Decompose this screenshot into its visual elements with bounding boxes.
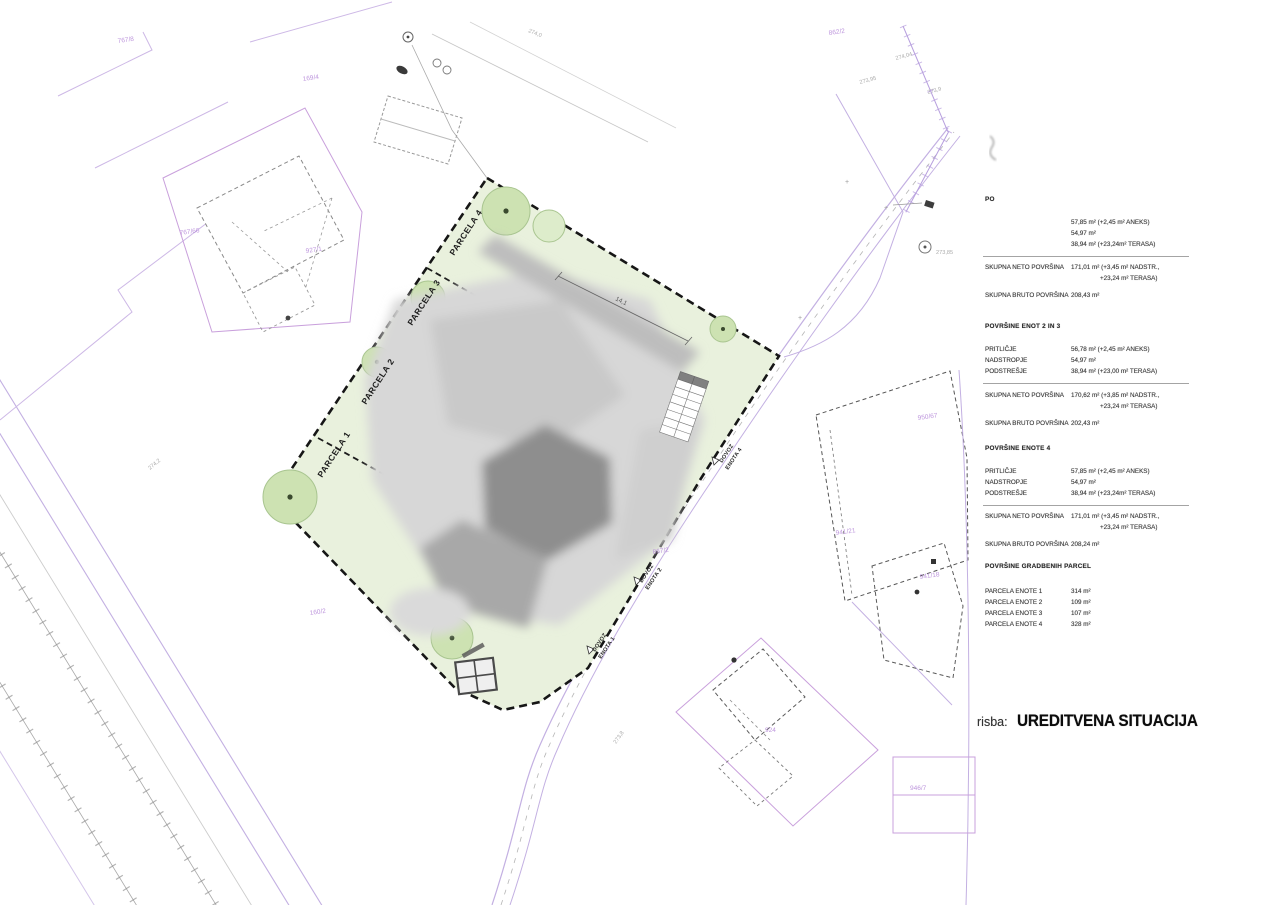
area-row: PODSTREŠJE38,94 m² (+23,00 m² TERASA) (985, 367, 1157, 377)
site-plan-sheet: 14,1 (0, 0, 1280, 905)
divider (983, 383, 1189, 384)
section-3-header: POVRŠINE ENOTE 4 (985, 444, 1050, 454)
area-row: PARCELA ENOTE 1314 m² (985, 587, 1091, 597)
cadastral-label: 160/2 (309, 608, 326, 617)
fence-northeast (784, 26, 949, 357)
section-2-header: POVRŠINE ENOT 2 IN 3 (985, 322, 1060, 332)
utility-symbols (395, 32, 487, 178)
divider (983, 256, 1189, 257)
existing-house-southeast (872, 543, 963, 678)
svg-text:+: + (798, 315, 802, 322)
cadastral-label: 767/66 (179, 227, 200, 237)
spot-elevation: 273,8 (613, 730, 626, 745)
cadastral-label: 767/8 (117, 36, 134, 45)
existing-house-northwest (163, 108, 362, 332)
net-total-row: SKUPNA NETO POVRŠINA171,01 m² (+3,45 m² … (985, 263, 1159, 273)
drawing-title-block: risba: UREDITVENA SITUACIJA (977, 716, 1211, 727)
embankment-hatch (0, 494, 229, 905)
embankment-hatch (0, 442, 287, 905)
area-row: PRITLIČJE56,78 m² (+2,45 m² ANEKS) (985, 345, 1150, 355)
survey-lines-topcenter (432, 22, 676, 142)
net-total-row-line2: +23,24 m² TERASA) (1100, 523, 1157, 533)
area-row: PARCELA ENOTE 2109 m² (985, 598, 1091, 608)
cadastral-label: 924 (765, 727, 776, 734)
net-total-row: SKUPNA NETO POVRŠINA170,62 m² (+3,85 m² … (985, 391, 1159, 401)
cadastral-label: 946/7 (910, 785, 927, 792)
gross-total-row: SKUPNA BRUTO POVRŠINA202,43 m² (985, 419, 1099, 429)
net-total-row-line2: +23,24 m² TERASA) (1100, 402, 1157, 412)
spot-elevation: 274,2 (147, 458, 162, 472)
drawing-title: UREDITVENA SITUACIJA (1017, 716, 1198, 726)
cadastral-parcel-east (816, 370, 969, 905)
svg-text:+: + (845, 179, 849, 186)
area-row: PODSTREŠJE38,94 m² (+23,24m² TERASA) (985, 489, 1155, 499)
section-4-header: POVRŠINE GRADBENIH PARCEL (985, 562, 1091, 572)
gross-total-row: SKUPNA BRUTO POVRŠINA208,43 m² (985, 291, 1099, 301)
svg-text:+: + (884, 205, 888, 212)
cadastral-lines-topleft (0, 2, 392, 420)
cadastral-label: 941/21 (835, 527, 856, 537)
area-row: 38,94 m² (+23,24m² TERASA) (985, 240, 1155, 250)
net-total-row: SKUPNA NETO POVRŠINA171,01 m² (+3,45 m² … (985, 512, 1159, 522)
structure-topcenter (374, 96, 462, 164)
area-row: PRITLIČJE57,85 m² (+2,45 m² ANEKS) (985, 467, 1150, 477)
area-row: PARCELA ENOTE 3107 m² (985, 609, 1091, 619)
cadastral-label: 941/18 (919, 571, 940, 581)
cadastral-label: 927/1 (305, 246, 322, 255)
cadastral-label: 950/67 (917, 412, 938, 422)
existing-house-south (676, 602, 952, 826)
spot-elevation: 274,0 (527, 28, 542, 39)
area-row: NADSTROPJE54,97 m² (985, 356, 1096, 366)
spot-elevation: 273,95 (859, 76, 877, 86)
manhole-symbols (893, 200, 935, 253)
section-1-header: PO (985, 195, 995, 205)
area-row: NADSTROPJE54,97 m² (985, 478, 1096, 488)
cadastral-label: 862/2 (828, 28, 845, 37)
area-row: 54,97 m² (985, 229, 1096, 239)
divider (983, 505, 1189, 506)
area-row: 57,85 m² (+2,45 m² ANEKS) (985, 218, 1150, 228)
cadastral-label: 867/2 (652, 547, 669, 556)
cadastral-parcel-bottomright (893, 757, 975, 833)
net-total-row-line2: +23,24 m² TERASA) (1100, 274, 1157, 284)
spot-elevation: 274,04 (895, 52, 913, 62)
drawing-title-label: risba: (977, 717, 1008, 727)
spot-elevation: 273,85 (936, 250, 953, 256)
area-summary-panel: PO 57,85 m² (+2,45 m² ANEKS) 54,97 m² 38… (983, 0, 1253, 905)
cadastral-label: 169/4 (302, 74, 319, 83)
gross-total-row: SKUPNA BRUTO POVRŠINA208,24 m² (985, 540, 1099, 550)
area-row: PARCELA ENOTE 4328 m² (985, 620, 1091, 630)
